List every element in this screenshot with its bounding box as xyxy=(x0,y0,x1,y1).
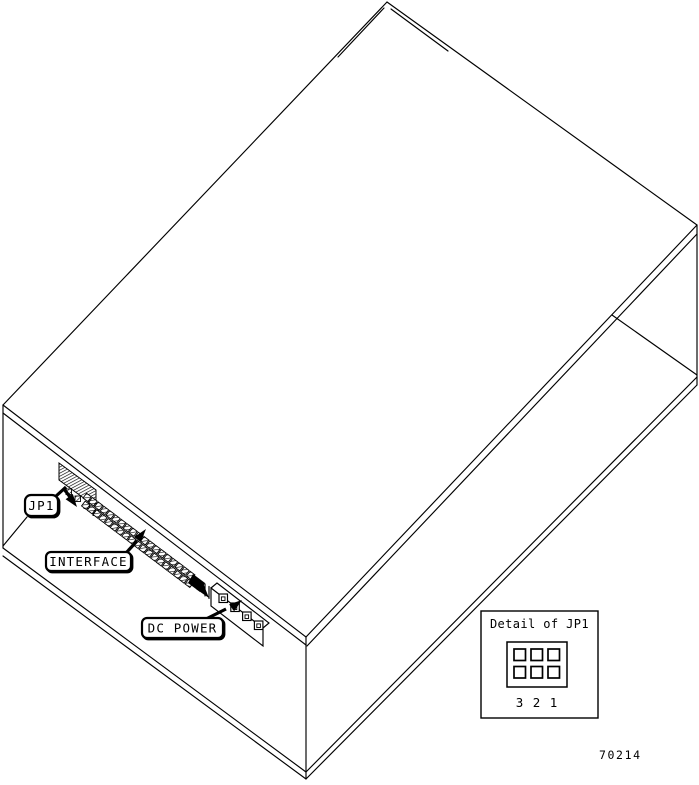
callout-interface: INTERFACE xyxy=(46,552,132,572)
pin xyxy=(548,667,560,679)
pin xyxy=(531,649,543,661)
callout-dc-power-label: DC POWER xyxy=(148,621,218,636)
pin xyxy=(531,667,543,679)
pin xyxy=(245,615,249,619)
pin xyxy=(548,649,560,661)
pin xyxy=(257,624,261,628)
pin xyxy=(514,649,526,661)
jp1-detail-title: Detail of JP1 xyxy=(490,617,589,631)
pin xyxy=(75,496,81,502)
figure-number: 70214 xyxy=(599,748,642,762)
callout-jp1-label: JP1 xyxy=(28,498,54,513)
pin xyxy=(221,597,225,601)
pin xyxy=(514,667,526,679)
callout-jp1: JP1 xyxy=(25,495,59,517)
callout-interface-label: INTERFACE xyxy=(49,554,128,569)
jp1-detail-box: Detail of JP1 3 2 1 xyxy=(481,611,598,718)
interface-connector xyxy=(79,493,209,598)
jp1-pin-label-2: 2 xyxy=(533,695,541,710)
figure-page: JP1 INTERFACE DC POWER Detail of JP1 3 2… xyxy=(0,0,699,785)
drive-rear-isometric-figure: JP1 INTERFACE DC POWER Detail of JP1 3 2… xyxy=(0,0,699,785)
callout-dc-power: DC POWER xyxy=(142,618,224,639)
jp1-pin-label-3: 3 xyxy=(516,695,524,710)
jp1-pin-label-1: 1 xyxy=(550,695,558,710)
